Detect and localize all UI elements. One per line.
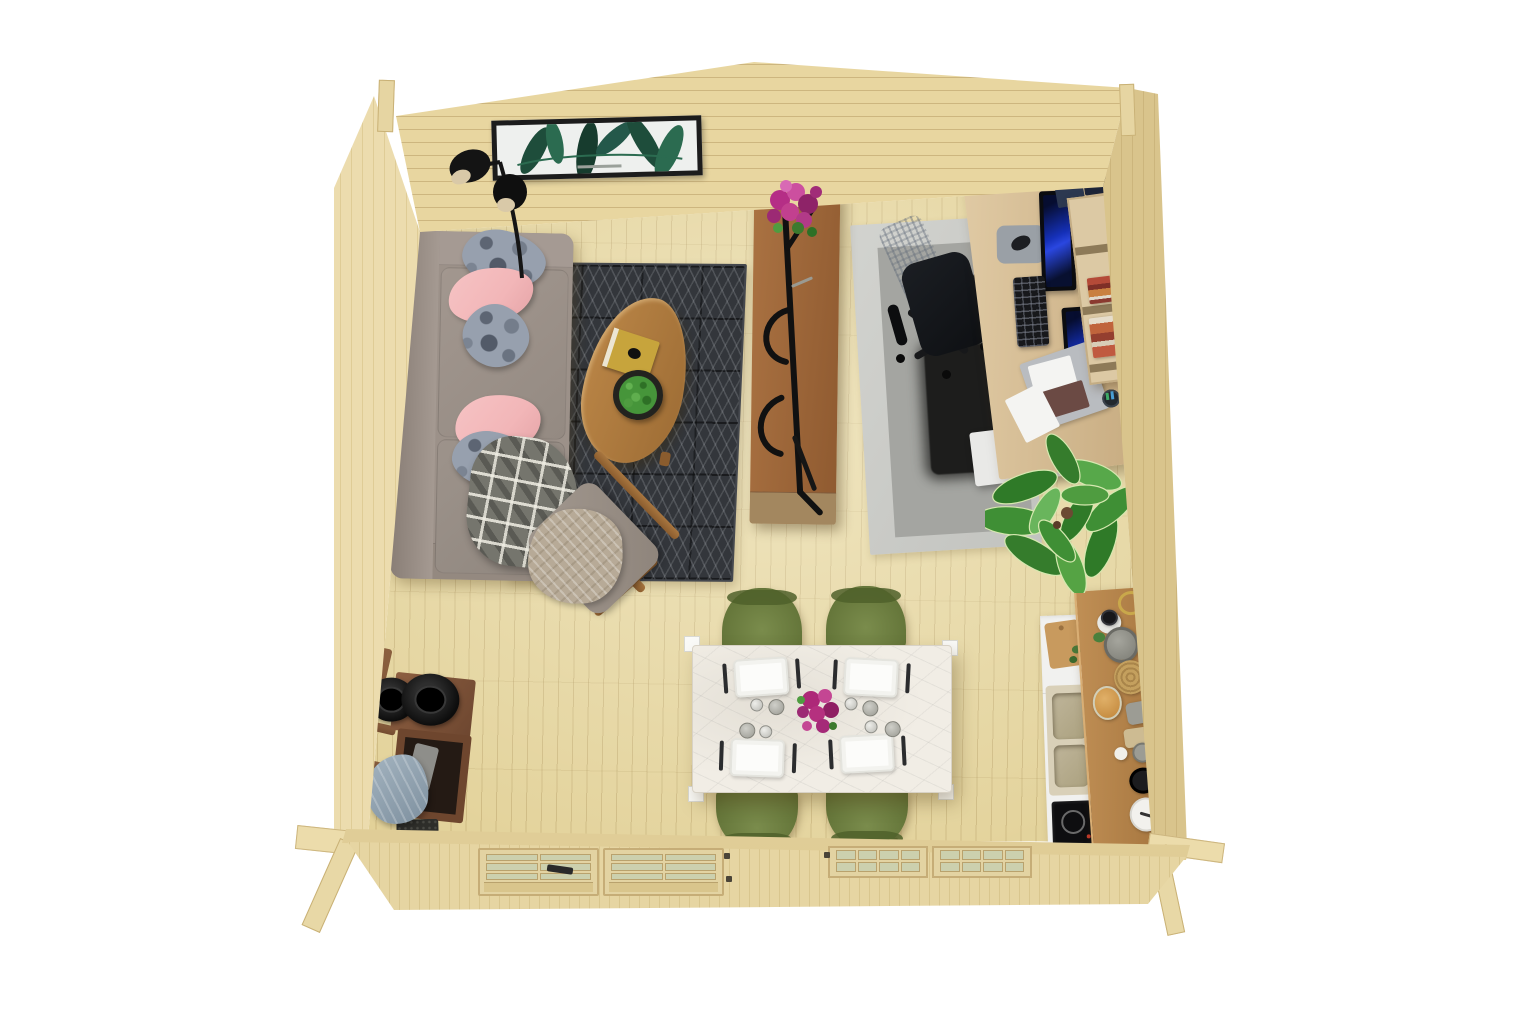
sink-basin — [1054, 744, 1089, 787]
brass-rings — [1117, 590, 1145, 616]
armchair — [525, 484, 670, 641]
door-pane-grid — [611, 854, 716, 880]
glass-pane — [879, 862, 899, 872]
glass-pane — [983, 862, 1003, 872]
window-hinge — [824, 852, 830, 858]
egg-cup — [1114, 747, 1128, 761]
glass-pane — [486, 873, 538, 880]
canister-handle — [1140, 812, 1154, 819]
divider-flower-bouquet — [750, 166, 836, 246]
glass-pane — [1005, 862, 1025, 872]
glass-pane — [901, 862, 921, 872]
dining-chair — [716, 788, 798, 850]
corner-post-top-right — [1119, 84, 1136, 136]
glass-pane — [665, 854, 717, 861]
door-leaf — [478, 848, 599, 896]
glass-pane — [1005, 850, 1025, 860]
door-hinge — [724, 853, 730, 859]
herb-leaves — [1069, 656, 1078, 664]
plate — [839, 733, 895, 774]
glass-jar-preserves — [1092, 685, 1123, 721]
plate — [843, 657, 899, 698]
glass-pane — [879, 850, 899, 860]
mousepad — [996, 225, 1045, 264]
door-lower-panel — [484, 882, 593, 892]
window-leaf — [828, 846, 928, 878]
white-canister — [1129, 796, 1164, 832]
door-hinge — [726, 876, 732, 882]
mouse — [1009, 233, 1033, 253]
glass-pane — [858, 850, 878, 860]
window-pane-grid — [836, 850, 920, 872]
window-pane-grid — [940, 850, 1024, 872]
render-canvas — [0, 0, 1536, 1025]
boxwood-bowl — [613, 370, 663, 420]
book-stack — [1087, 275, 1122, 305]
fiddle-leaf-fig-plant — [985, 425, 1130, 593]
glass-pane — [611, 863, 663, 870]
knit-throw — [526, 507, 624, 605]
coat-rack — [350, 642, 482, 848]
board-hole — [1058, 625, 1064, 631]
glass-pane — [665, 873, 717, 880]
glass-pane — [858, 862, 878, 872]
door-lower-panel — [609, 882, 718, 892]
door-leaf — [603, 848, 724, 896]
lidded-pot — [1103, 626, 1140, 664]
dining-chair — [722, 588, 802, 652]
glass-pane — [486, 863, 538, 870]
glass-pane — [611, 854, 663, 861]
chair-caster — [942, 370, 951, 379]
double-window — [828, 846, 1032, 878]
chair-caster — [896, 354, 905, 363]
plate — [730, 738, 785, 778]
door-pane-grid — [486, 854, 591, 880]
pen — [1106, 393, 1110, 400]
glass-pane — [962, 850, 982, 860]
glass-pane — [486, 854, 538, 861]
glass-pane — [540, 854, 592, 861]
dining-flower-bouquet — [793, 684, 841, 738]
chair-armrest — [886, 303, 908, 346]
glass-pane — [611, 873, 663, 880]
corner-post-bottom-right — [1149, 844, 1185, 936]
hob-ring — [1061, 810, 1086, 835]
plate — [733, 656, 790, 698]
pen — [1110, 391, 1114, 399]
glass-pane — [940, 862, 960, 872]
dining-chair — [826, 786, 908, 848]
book-stack — [1089, 314, 1128, 358]
woven-jar — [1113, 659, 1148, 695]
floor-lamp — [430, 128, 560, 288]
corner-post-top-left — [377, 80, 395, 133]
glass-pane — [836, 850, 856, 860]
glass-pane — [983, 850, 1003, 860]
keyboard — [1013, 276, 1050, 348]
grey-jar — [1132, 742, 1153, 763]
glass-pane — [962, 862, 982, 872]
window-leaf — [932, 846, 1032, 878]
shelf-divider — [1075, 242, 1126, 256]
black-kettle — [1128, 767, 1158, 795]
dining-chair — [826, 586, 906, 650]
glass-pane — [940, 850, 960, 860]
glass-pane — [901, 850, 921, 860]
glass-pane — [665, 863, 717, 870]
double-glazed-door — [478, 848, 724, 896]
glass-pane — [836, 862, 856, 872]
shelf-divider — [1089, 359, 1140, 373]
square-tin — [1125, 700, 1150, 725]
